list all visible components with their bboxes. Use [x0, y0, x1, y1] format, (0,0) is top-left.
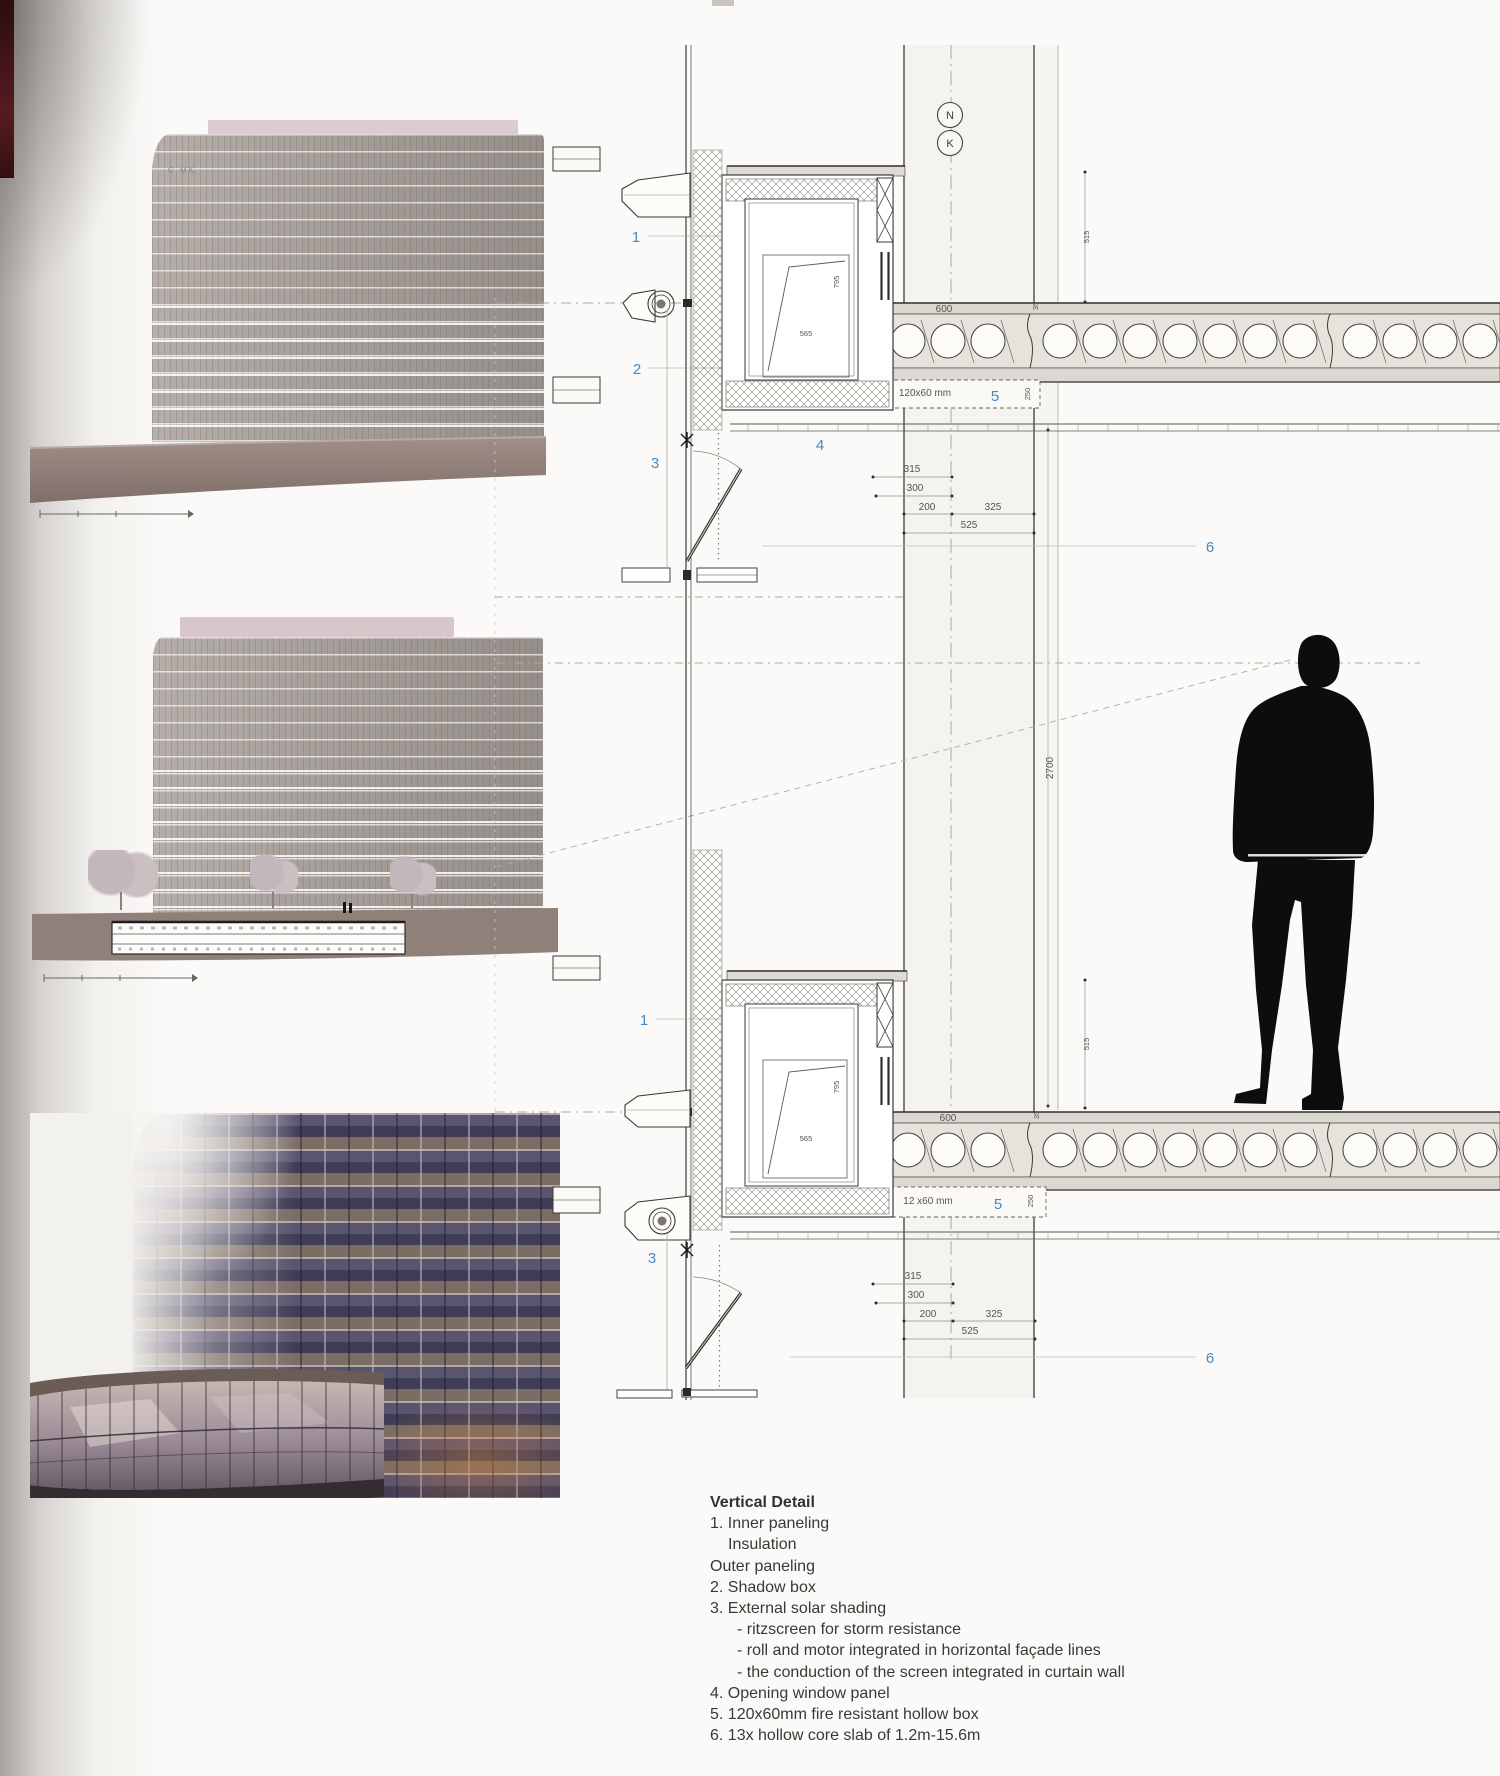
- slab-void: [971, 324, 1005, 358]
- slab-void: [1423, 1133, 1457, 1167]
- legend-line: Insulation: [710, 1534, 1190, 1555]
- shadowbox-width-dim: 565: [800, 1134, 813, 1143]
- sill-plate: [617, 1390, 672, 1398]
- insulation-strip-lower: [693, 850, 722, 1230]
- slab-joint-dim: 35: [1031, 302, 1040, 310]
- slab-void: [1423, 324, 1457, 358]
- slab-void: [1083, 1133, 1117, 1167]
- legend-line: - the conduction of the screen integrate…: [710, 1662, 1190, 1683]
- slab-void: [1043, 324, 1077, 358]
- fire-box-depth: 250: [1026, 1195, 1035, 1208]
- fire-box-lower: 12 x60 mm 5 250: [883, 1187, 1046, 1217]
- swing-arc: [693, 451, 741, 469]
- facade-fins-lower: [553, 956, 690, 1240]
- shadow-box-upper: 795 565: [722, 166, 905, 410]
- shadowbox-width-dim: 565: [800, 329, 813, 338]
- callout-3: 3: [648, 1250, 656, 1267]
- swing-arc: [693, 1277, 741, 1293]
- legend-line: - roll and motor integrated in horizonta…: [710, 1640, 1190, 1661]
- shadow-box-lower: 795 565: [722, 971, 907, 1217]
- ceiling-lines-upper: [730, 424, 1500, 431]
- slab-void: [1343, 1133, 1377, 1167]
- x-brace-column: [877, 983, 893, 1047]
- slab-span-dim: 600: [940, 1113, 957, 1124]
- legend-line: 5. 120x60mm fire resistant hollow box: [710, 1704, 1190, 1725]
- dim-515: 515: [1082, 1038, 1091, 1051]
- dim-300: 300: [907, 483, 924, 494]
- fire-box-depth: 250: [1023, 388, 1032, 401]
- sight-line-diagonal: [495, 660, 1290, 867]
- callout-6: 6: [1206, 539, 1214, 556]
- slab-void: [1043, 1133, 1077, 1167]
- callout-5: 5: [991, 388, 999, 405]
- slab-void: [1203, 1133, 1237, 1167]
- solar-screen-roller: [658, 1217, 667, 1226]
- dim-200: 200: [920, 1309, 937, 1320]
- slab-void: [1123, 1133, 1157, 1167]
- dim-525: 525: [961, 520, 978, 531]
- slab-void: [931, 1133, 965, 1167]
- legend-line: 1. Inner paneling: [710, 1513, 1190, 1534]
- opening-window-lower: [617, 1234, 757, 1398]
- slab-void: [931, 324, 965, 358]
- dim-200: 200: [919, 502, 936, 513]
- legend-line: Outer paneling: [710, 1556, 1190, 1577]
- slab-void: [971, 1133, 1005, 1167]
- slab-void: [1463, 324, 1497, 358]
- callout-6: 6: [1206, 1350, 1214, 1367]
- dim-300: 300: [908, 1290, 925, 1301]
- dim-2700: 2700: [1045, 756, 1056, 779]
- slab-joint-dim: 35: [1032, 1111, 1041, 1119]
- slab-void: [1243, 1133, 1277, 1167]
- slab-span-dim: 600: [936, 304, 953, 315]
- hollow-core-slab-lower: 600 35: [876, 1111, 1500, 1190]
- slab-void: [891, 1133, 925, 1167]
- sill-plate: [682, 1390, 757, 1397]
- slab-void: [1083, 324, 1117, 358]
- dim-525: 525: [962, 1326, 979, 1337]
- callout-3: 3: [651, 455, 659, 472]
- shadowbox-height-dim: 795: [832, 276, 841, 289]
- slab-void: [1283, 1133, 1317, 1167]
- ceiling-lines-lower: [730, 1232, 1500, 1239]
- slab-void: [891, 324, 925, 358]
- dim-315: 315: [905, 1271, 922, 1282]
- fire-box-label: 120x60 mm: [899, 388, 951, 399]
- grid-bubble-n: N: [946, 110, 954, 122]
- slab-void: [1203, 324, 1237, 358]
- dim-325: 325: [986, 1309, 1003, 1320]
- person-silhouette: [1233, 635, 1374, 1110]
- slab-void: [1123, 324, 1157, 358]
- grid-bubble-k: K: [946, 138, 954, 150]
- legend: Vertical Detail 1. Inner paneling Insula…: [710, 1492, 1190, 1746]
- fire-box-upper: 120x60 mm 5 250: [880, 380, 1040, 408]
- shadowbox-height-dim: 795: [832, 1081, 841, 1094]
- scanned-book-page: C MK: [0, 0, 1500, 1776]
- callout-1: 1: [640, 1012, 648, 1029]
- callout-5: 5: [994, 1196, 1002, 1213]
- dim-315: 315: [904, 464, 921, 475]
- slab-void: [1383, 324, 1417, 358]
- slab-void: [1463, 1133, 1497, 1167]
- slab-void: [1163, 1133, 1197, 1167]
- slab-void: [1343, 324, 1377, 358]
- wall-zone-2: [1034, 45, 1058, 1110]
- callout-2: 2: [633, 361, 641, 378]
- slab-void: [1283, 324, 1317, 358]
- dim-325: 325: [985, 502, 1002, 513]
- insulation-strip-upper: [693, 150, 722, 430]
- x-brace-column: [877, 178, 893, 242]
- legend-line: 3. External solar shading: [710, 1598, 1190, 1619]
- legend-title: Vertical Detail: [710, 1492, 1190, 1513]
- slab-void: [1383, 1133, 1417, 1167]
- slab-void: [1163, 324, 1197, 358]
- legend-line: 6. 13x hollow core slab of 1.2m-15.6m: [710, 1725, 1190, 1746]
- legend-line: 2. Shadow box: [710, 1577, 1190, 1598]
- transom-plate: [622, 568, 670, 582]
- hollow-core-slab-upper: 600 35: [876, 302, 1500, 382]
- callout-1: 1: [632, 229, 640, 246]
- slab-void: [1243, 324, 1277, 358]
- facade-fins-upper: [553, 147, 690, 403]
- legend-line: - ritzscreen for storm resistance: [710, 1619, 1190, 1640]
- solar-screen-roller: [657, 300, 666, 309]
- callout-4: 4: [816, 437, 824, 454]
- dim-515: 515: [1082, 231, 1091, 244]
- fire-box-label: 12 x60 mm: [903, 1196, 952, 1207]
- legend-line: 4. Opening window panel: [710, 1683, 1190, 1704]
